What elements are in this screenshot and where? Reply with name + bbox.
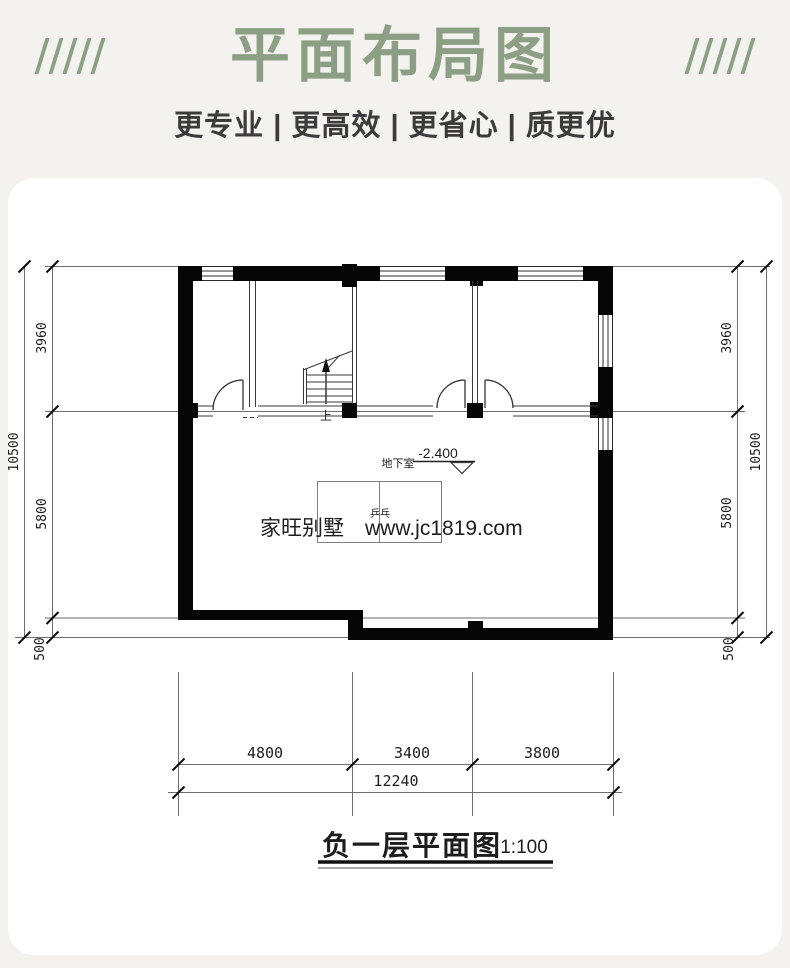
level-label: 地下室 [382,456,415,470]
caption-title: 负一层平面图 [322,830,502,861]
dim-right-total: 10500 [749,432,764,471]
walls [178,264,613,640]
dim-left-bottom: 500 [33,637,48,660]
title-row: 平面布局图 [0,0,790,86]
right-slashes-decoration-icon [684,38,756,74]
stair-up-label: 上 [320,409,332,423]
watermark: 家旺别墅 www.jc1819.com [260,517,523,540]
dim-right-mid: 5800 [720,497,735,528]
dim-left-mid: 5800 [35,498,50,529]
partition-walls [197,281,598,418]
left-slashes-decoration-icon [34,38,106,74]
caption-scale: 1:100 [500,837,548,858]
level-value: -2.400 [418,445,458,461]
window-top-2 [380,267,445,281]
dim-bottom-2: 3400 [394,744,430,762]
door-left [213,380,243,410]
window-top-1 [202,267,233,281]
dim-bottom-3: 3800 [524,744,560,762]
door-double-left [437,380,465,408]
floor-plan-drawing: 上 地下室 -2.400 乒乓 家旺别墅 www.jc1819.com 3960… [0,240,790,880]
poster-page: 平面布局图 更专业 | 更高效 | 更省心 | 质更优 [0,0,790,968]
dim-right-bottom: 500 [722,637,737,660]
dim-left-top: 3960 [35,322,50,353]
windows [202,267,613,451]
dim-right-top: 3960 [720,322,735,353]
caption: 负一层平面图 1:100 [318,830,553,868]
window-right-2 [599,418,613,450]
level-marker: 地下室 -2.400 [382,445,476,474]
page-title: 平面布局图 [230,26,560,86]
header: 平面布局图 更专业 | 更高效 | 更省心 | 质更优 [0,0,790,178]
stairs [303,351,352,404]
level-triangle-icon [451,463,473,474]
door-double-right [485,380,513,408]
dim-bottom-total: 12240 [373,772,418,790]
dim-bottom-1: 4800 [247,744,283,762]
grid-lines [15,267,770,817]
window-right-1 [599,315,613,367]
window-top-3 [518,267,583,281]
dimension-labels: 3960 5800 500 10500 3960 5800 500 10500 … [7,322,764,790]
page-subtitle: 更专业 | 更高效 | 更省心 | 质更优 [0,102,790,144]
dim-left-total: 10500 [7,432,22,471]
